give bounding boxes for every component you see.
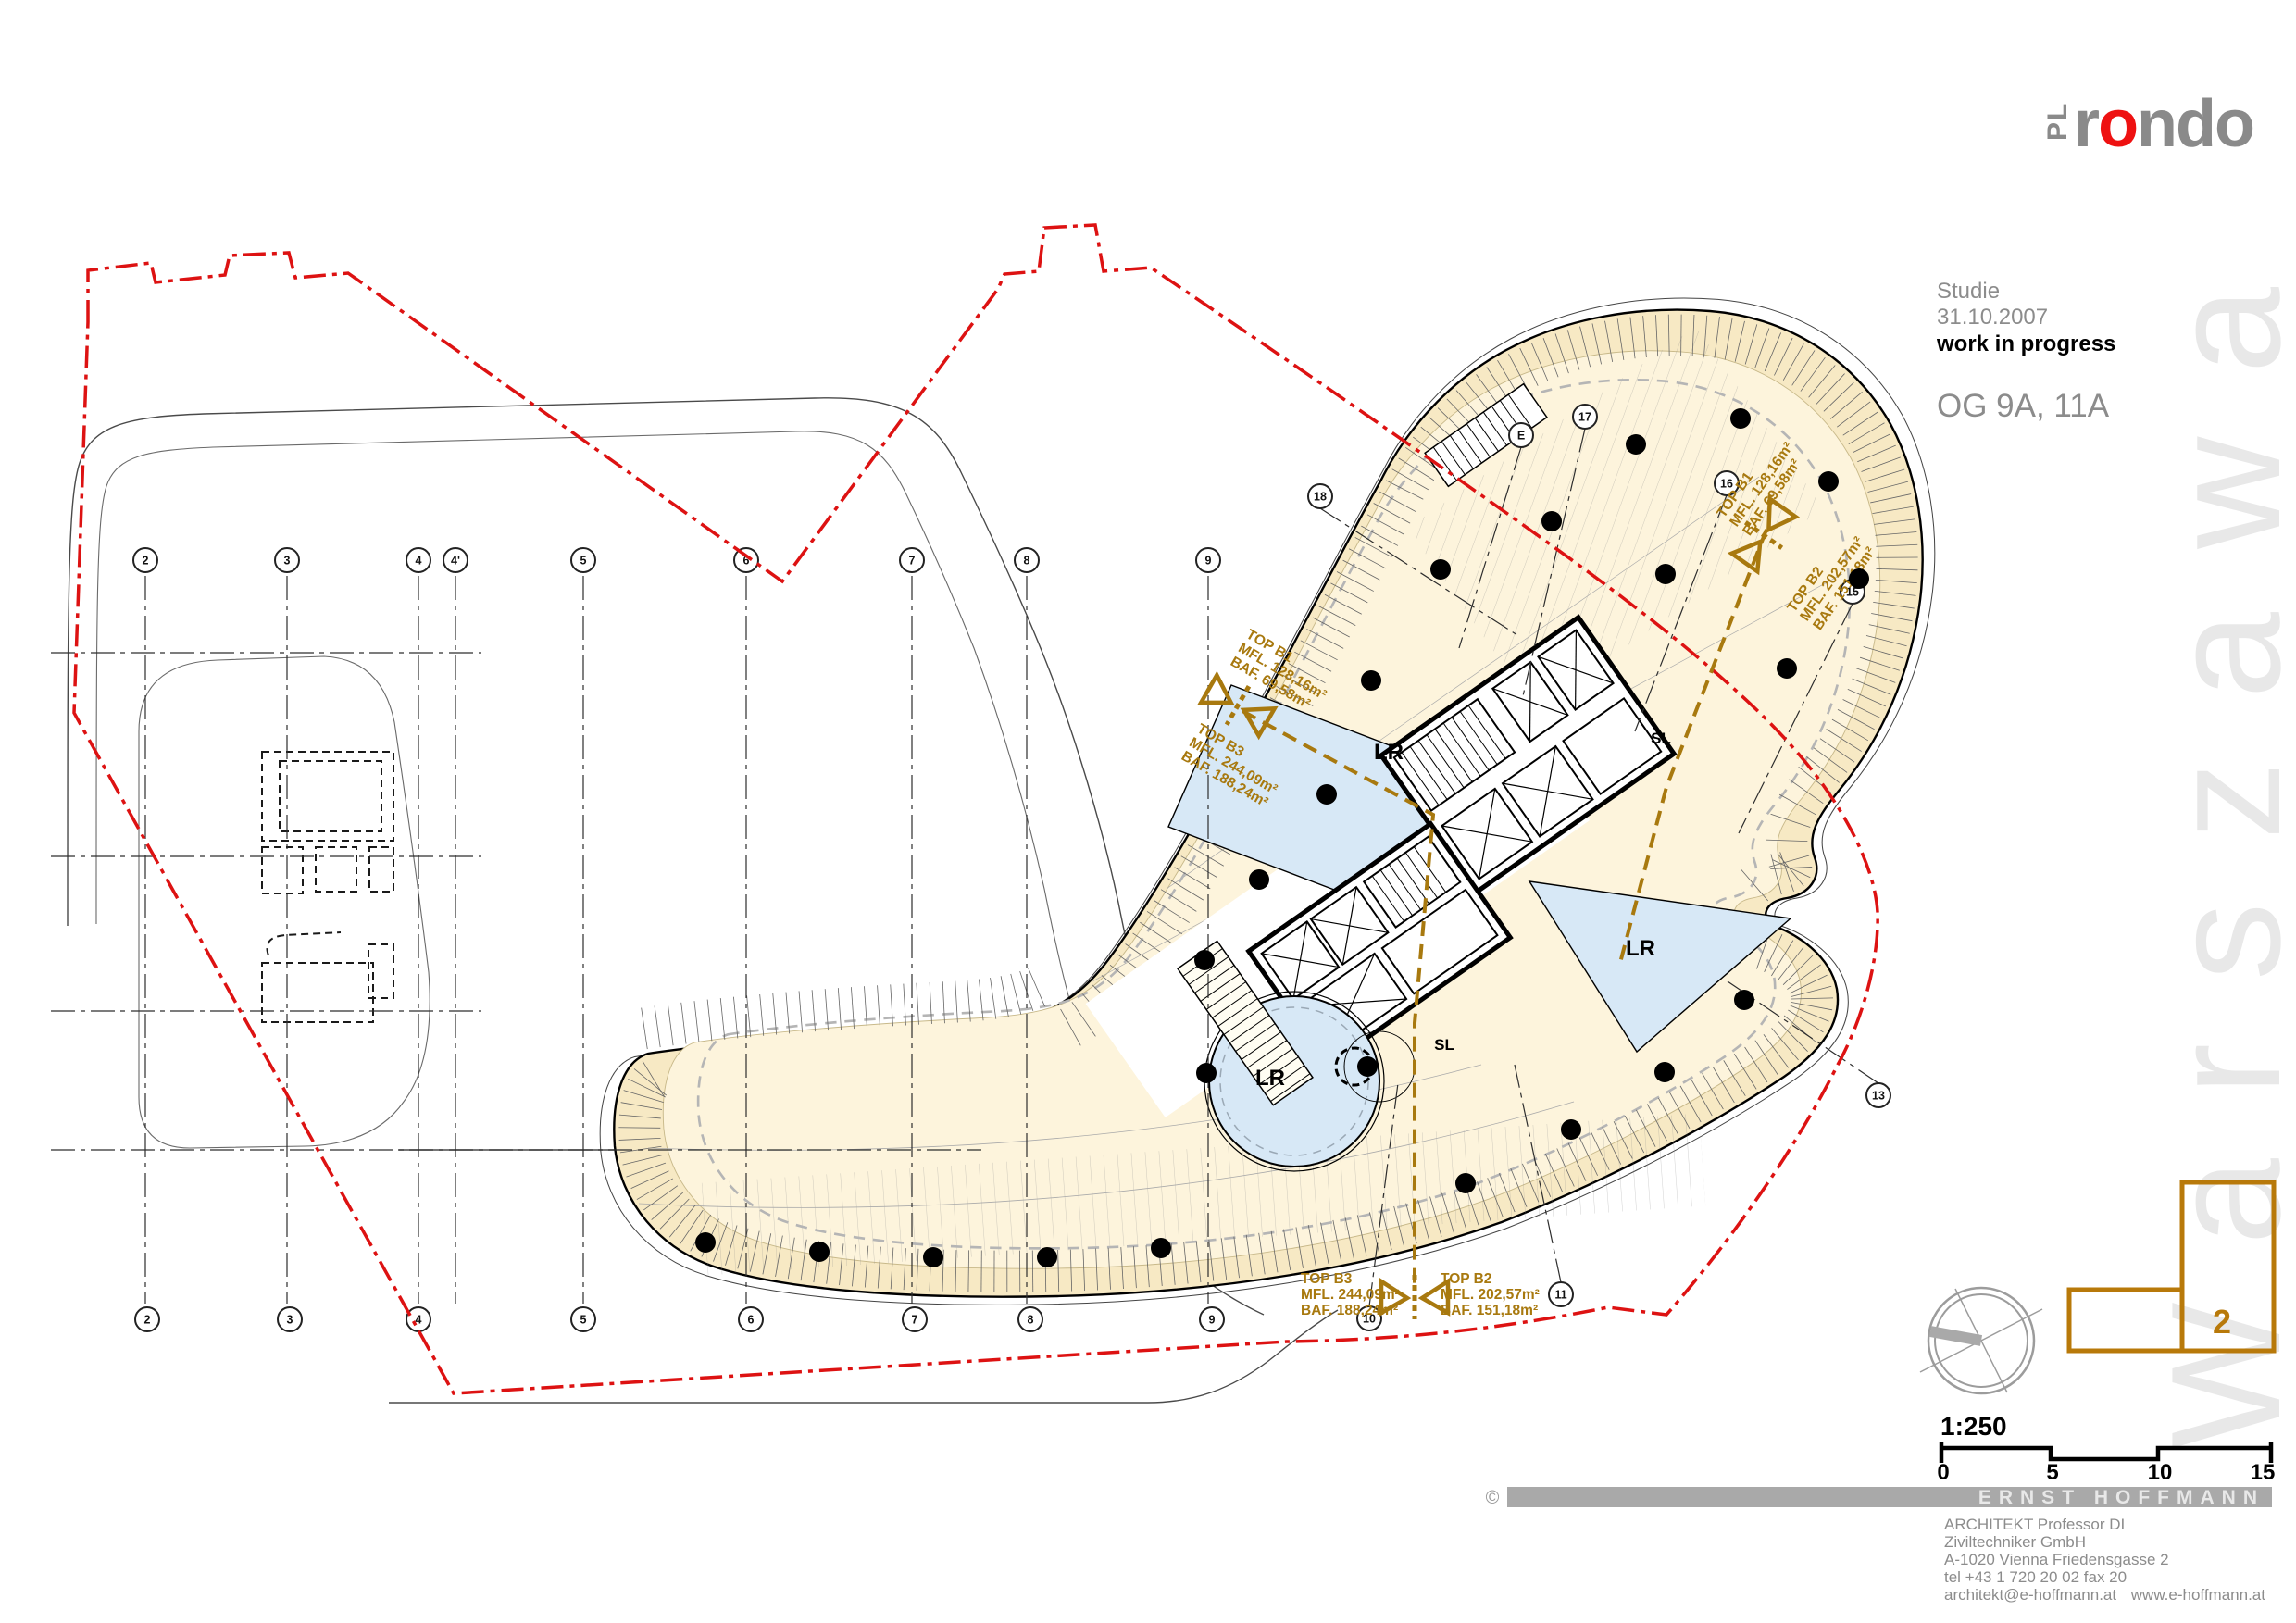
column-dot — [1194, 950, 1215, 970]
grid-bubble-label: 17 — [1578, 411, 1591, 424]
column-dot — [1316, 784, 1337, 805]
firm-address-line: ARCHITEKT Professor DI — [1944, 1516, 2125, 1533]
column-dot — [1654, 1062, 1675, 1082]
grid-bubble-label: 3 — [287, 1314, 293, 1327]
grid-bubble-label: 11 — [1554, 1289, 1566, 1302]
room-label: SL — [1651, 730, 1671, 747]
firm-address-line: Ziviltechniker GmbH — [1944, 1533, 2086, 1551]
logo-rondo: rondo — [2074, 87, 2253, 161]
scale-ratio: 1:250 — [1940, 1412, 2007, 1441]
grid-bubble-label: 4' — [451, 555, 460, 568]
study-label: Studie — [1937, 279, 2000, 304]
existing-buildings — [262, 752, 393, 1022]
sheet-title: OG 9A, 11A — [1937, 388, 2110, 424]
room-label: LR — [1374, 740, 1404, 765]
grid-bubble-label: 8 — [1028, 1314, 1034, 1327]
area-annotation: TOP B2MFL. 202,57m²BAF. 151,18m² — [1441, 1271, 1540, 1318]
room-label: SL — [1434, 1036, 1454, 1054]
room-label: LR — [1255, 1066, 1285, 1091]
scale-tick-label: 0 — [1937, 1460, 1949, 1485]
column-dot — [923, 1247, 943, 1267]
column-dot — [1430, 559, 1451, 580]
column-dot — [1455, 1173, 1476, 1193]
column-dot — [809, 1242, 830, 1262]
column-dot — [695, 1232, 716, 1253]
room-label: LR — [1626, 936, 1655, 961]
column-dot — [1249, 869, 1269, 890]
grid-bubble-label: 5 — [580, 555, 587, 568]
grid-bubble-label: 9 — [1205, 555, 1212, 568]
column-dot — [1541, 511, 1562, 531]
column-dot — [1655, 564, 1676, 584]
grid-bubble-label: 5 — [580, 1314, 587, 1327]
column-dot — [1037, 1247, 1057, 1267]
column-dot — [1561, 1119, 1581, 1140]
scale-tick-label: 5 — [2046, 1460, 2058, 1485]
grid-bubble-label: 2 — [143, 555, 149, 568]
column-dot — [1151, 1238, 1171, 1258]
grid-bubble-label: 13 — [1872, 1090, 1885, 1103]
grid-bubble-label: E — [1517, 430, 1525, 443]
column-dot — [1849, 568, 1869, 589]
date-label: 31.10.2007 — [1937, 305, 2048, 330]
firm-block: © ERNST HOFFMANN ARCHITEKT Professor DIZ… — [1486, 1487, 2272, 1604]
column-dot — [1777, 658, 1797, 679]
scale-tick-label: 10 — [2148, 1460, 2173, 1485]
column-dot — [1196, 1063, 1217, 1083]
grid-bubble-label: 8 — [1024, 555, 1030, 568]
firm-address-line: A-1020 Vienna Friedensgasse 2 — [1944, 1551, 2169, 1568]
firm-address-line: tel +43 1 720 20 02 fax 20 — [1944, 1568, 2127, 1586]
floor-plan-sheet: Warszawa — [0, 0, 2296, 1623]
logo-vertical: PL — [2042, 102, 2073, 141]
column-dot — [1734, 990, 1754, 1010]
key-plan-floor: 2 — [2213, 1303, 2231, 1341]
grid-bubble-label: 3 — [284, 555, 291, 568]
firm-website: www.e-hoffmann.at — [2130, 1586, 2265, 1604]
grid-bubble-label: 9 — [1209, 1314, 1216, 1327]
copyright-icon: © — [1486, 1488, 1500, 1508]
firm-address-line: architekt@e-hoffmann.at — [1944, 1586, 2116, 1604]
status-label: work in progress — [1936, 331, 2115, 356]
grid-bubble-label: 2 — [144, 1314, 151, 1327]
north-compass-icon — [1920, 1288, 2042, 1393]
column-dot — [1357, 1056, 1378, 1077]
column-dot — [1626, 434, 1646, 455]
grid-bubble-label: 6 — [748, 1314, 755, 1327]
column-dot — [1361, 670, 1381, 691]
column-dot — [1730, 408, 1751, 429]
firm-name: ERNST HOFFMANN — [1978, 1487, 2265, 1508]
grid-bubble-label: 7 — [909, 555, 916, 568]
column-dot — [1818, 471, 1839, 492]
scale-tick-label: 15 — [2251, 1460, 2276, 1485]
grid-bubble-label: 18 — [1314, 491, 1327, 504]
grid-bubble-label: 7 — [912, 1314, 918, 1327]
grid-bubble-label: 4 — [416, 555, 422, 568]
